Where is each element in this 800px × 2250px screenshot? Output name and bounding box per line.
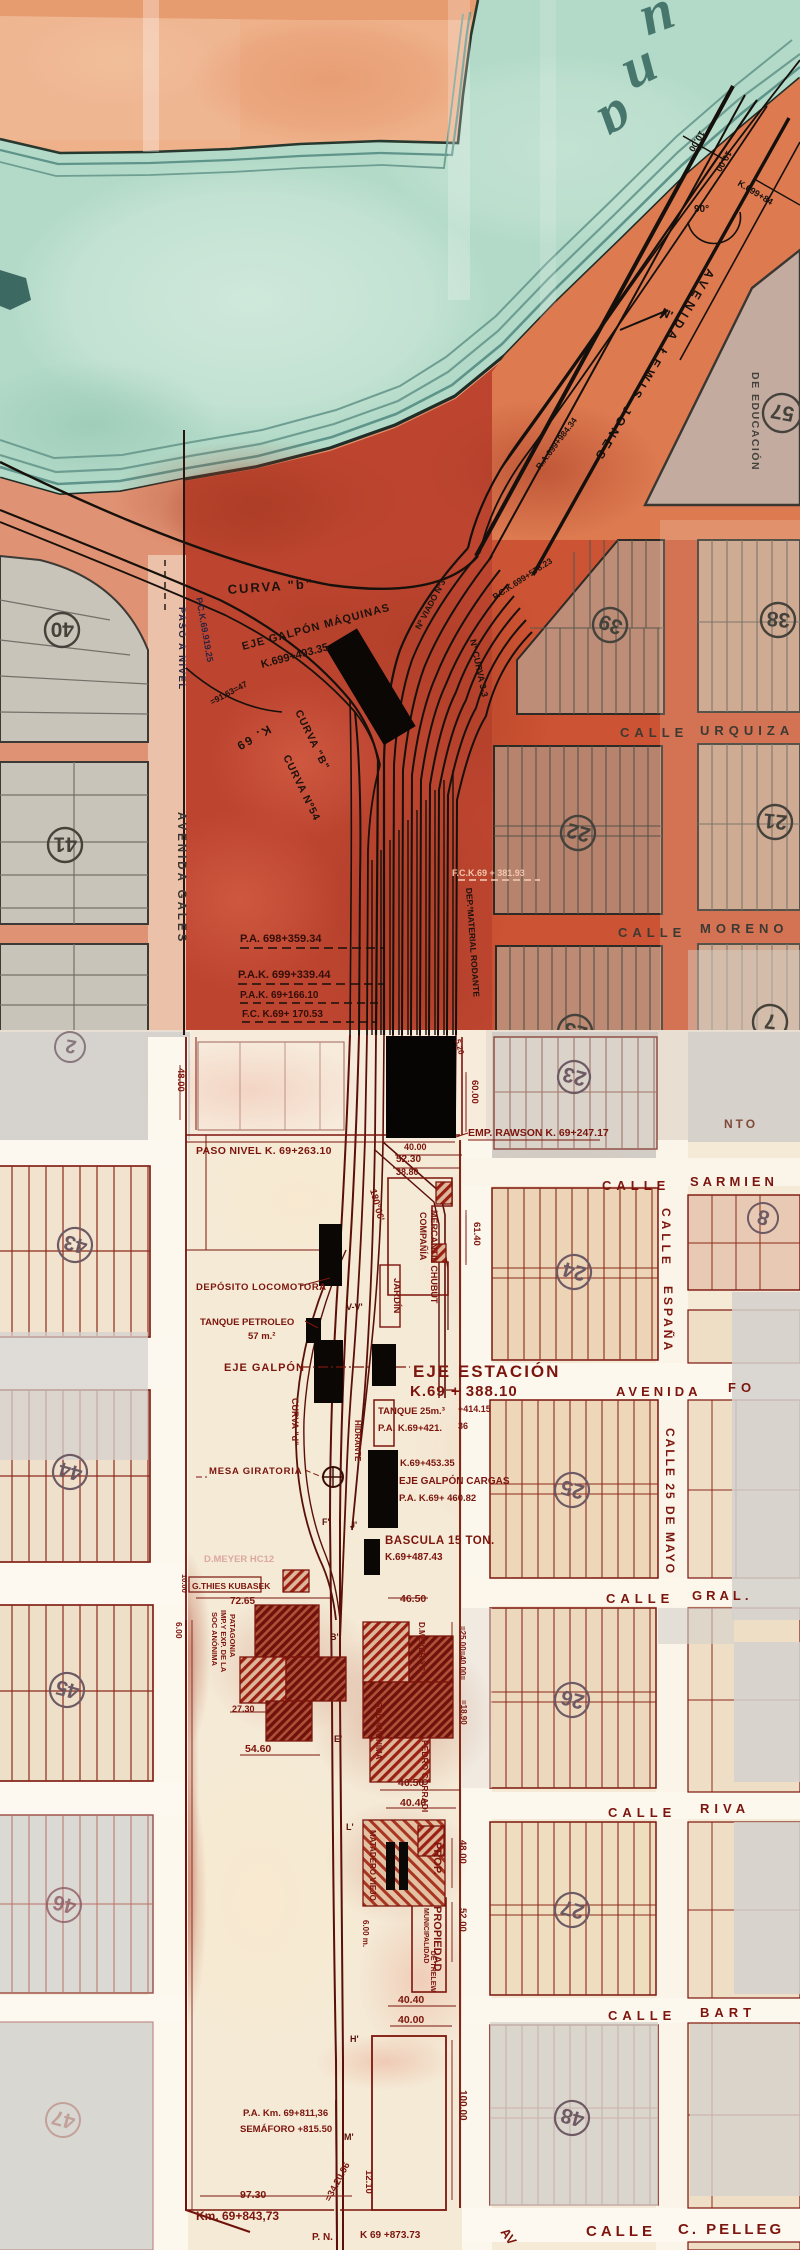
svg-text:P.A. K.69+421.: P.A. K.69+421. [378,1423,442,1434]
svg-text:DE TRELEW: DE TRELEW [429,1951,436,1993]
svg-text:10.00: 10.00 [180,1574,189,1593]
svg-text:46.50: 46.50 [400,1593,426,1605]
svg-text:V-V': V-V' [346,1302,363,1312]
svg-text:K.69+453.35: K.69+453.35 [400,1458,455,1469]
svg-text:K.69 + 388.10: K.69 + 388.10 [410,1383,518,1400]
svg-text:TANQUE PETROLEO: TANQUE PETROLEO [200,1317,294,1328]
svg-text:H': H' [350,2034,359,2044]
svg-text:F': F' [322,1517,330,1527]
svg-text:K.69+487.43: K.69+487.43 [385,1552,443,1563]
svg-text:DE EDUCACIÓN: DE EDUCACIÓN [749,372,762,471]
svg-text:52.00: 52.00 [457,1908,468,1932]
svg-text:E': E' [334,1734,342,1744]
svg-text:JARDÍN: JARDÍN [391,1278,402,1314]
svg-text:PATAGONIA: PATAGONIA [228,1614,237,1658]
svg-text:6.00: 6.00 [174,1622,184,1639]
svg-text:40.40: 40.40 [398,1994,424,2006]
svg-text:90°: 90° [694,204,709,215]
svg-text:36: 36 [458,1421,468,1431]
svg-text:PASO NIVEL K. 69+263.10: PASO NIVEL K. 69+263.10 [196,1145,332,1157]
svg-text:FO: FO [728,1380,756,1395]
svg-text:B': B' [330,1632,339,1642]
svg-text:57 m.²: 57 m.² [248,1331,275,1342]
svg-text:IMP.Y EXP. DE LA: IMP.Y EXP. DE LA [219,1610,228,1673]
svg-text:P.A. K.69+ 460.82: P.A. K.69+ 460.82 [399,1493,476,1504]
svg-text:+414.15: +414.15 [458,1404,491,1414]
svg-text:CALLE: CALLE [618,925,686,940]
svg-text:41: 41 [53,833,77,856]
svg-text:SOC ANÓNIMA: SOC ANÓNIMA [374,1702,383,1760]
svg-text:L': L' [346,1822,354,1832]
svg-text:EJE ESTACIÓN: EJE ESTACIÓN [413,1362,560,1381]
svg-text:GRAL.: GRAL. [692,1588,752,1603]
svg-text:CALLE 25 DE MAYO: CALLE 25 DE MAYO [663,1428,677,1575]
svg-text:TANQUE 25m.³: TANQUE 25m.³ [378,1406,445,1417]
svg-text:27.30: 27.30 [232,1704,255,1714]
svg-text:P.A. 698+359.34: P.A. 698+359.34 [240,933,322,945]
svg-text:SARMIEN: SARMIEN [690,1174,778,1189]
svg-text:D.MEYER YCª: D.MEYER YCª [417,1622,426,1675]
svg-text:EJE GALPÓN CARGAS: EJE GALPÓN CARGAS [399,1474,510,1487]
svg-text:40: 40 [51,618,74,641]
svg-text:100.00: 100.00 [457,2090,468,2121]
svg-text:CALLE: CALLE [606,1591,674,1606]
svg-text:EJE GALPÓN: EJE GALPÓN [224,1361,305,1374]
svg-text:J': J' [350,1520,357,1530]
svg-text:C. PELLEG: C. PELLEG [678,2221,784,2238]
svg-text:=18.90: =18.90 [459,1700,468,1725]
svg-text:12.10: 12.10 [363,2170,374,2194]
svg-text:P.A.K. 69+166.10: P.A.K. 69+166.10 [240,990,319,1001]
svg-text:PEDRO CORRADI: PEDRO CORRADI [420,1740,430,1812]
svg-text:CALLE: CALLE [620,725,688,740]
svg-text:40.00: 40.00 [398,2014,424,2026]
svg-text:60.00: 60.00 [469,1080,480,1104]
svg-text:6.00 m.: 6.00 m. [361,1920,370,1947]
svg-text:EMP. RAWSON K. 69+247.17: EMP. RAWSON K. 69+247.17 [468,1127,609,1139]
svg-text:BASCULA 15 TON.: BASCULA 15 TON. [385,1535,495,1547]
svg-text:NTO: NTO [724,1117,758,1131]
svg-text:COMPAÑÍA: COMPAÑÍA [418,1212,428,1261]
svg-text:48.00: 48.00 [457,1840,468,1864]
svg-text:P. N.: P. N. [312,2232,333,2243]
svg-text:57: 57 [769,399,796,426]
svg-text:PASO A NIVEL: PASO A NIVEL [176,607,187,691]
svg-text:MERCANTIL CHUBUT: MERCANTIL CHUBUT [429,1210,439,1304]
svg-text:61.40: 61.40 [471,1222,482,1246]
svg-text:40.00: 40.00 [404,1142,427,1152]
svg-text:ESPAÑA: ESPAÑA [661,1286,676,1353]
svg-text:7: 7 [763,1009,777,1033]
svg-text:CALLE: CALLE [608,2008,676,2023]
svg-text:HIDRANTE: HIDRANTE [353,1420,362,1462]
svg-text:P.A. Km. 69+811,36: P.A. Km. 69+811,36 [243,2108,328,2119]
svg-text:=25.00=40.00=: =25.00=40.00= [458,1626,467,1680]
svg-text:P.A.K. 699+339.44: P.A.K. 699+339.44 [238,969,331,981]
svg-text:CALLE: CALLE [602,1178,670,1193]
svg-text:MORENO: MORENO [700,921,789,936]
svg-text:38.80: 38.80 [396,1167,419,1177]
svg-text:RIVA: RIVA [700,1801,750,1816]
svg-text:97.30: 97.30 [240,2189,266,2201]
svg-text:F.C.K.69 + 381.93: F.C.K.69 + 381.93 [452,868,525,878]
svg-text:CALLE: CALLE [586,2223,656,2240]
svg-text:SEMÁFORO +815.50: SEMÁFORO +815.50 [240,2124,332,2135]
svg-text:54.60: 54.60 [245,1743,271,1755]
svg-text:DEPÓSITO LOCOMOTORA: DEPÓSITO LOCOMOTORA [196,1281,327,1293]
svg-text:K 69 +873.73: K 69 +873.73 [360,2230,421,2241]
svg-text:BART: BART [700,2005,756,2020]
svg-text:CURVA "d": CURVA "d" [290,1398,300,1445]
svg-text:SOC ANÓNIMA: SOC ANÓNIMA [210,1612,219,1666]
svg-text:72.65: 72.65 [230,1596,255,1607]
svg-text:MESA GIRATORIA: MESA GIRATORIA [209,1466,302,1477]
svg-text:Km. 69+843,73: Km. 69+843,73 [196,2209,279,2223]
svg-text:URQUIZA: URQUIZA [700,723,794,738]
svg-text:AVENIDA: AVENIDA [616,1384,702,1399]
svg-text:G.THIES KUBASEK: G.THIES KUBASEK [192,1581,271,1591]
svg-text:PROP.: PROP. [431,1842,443,1875]
svg-text:MATADERO VIEJO: MATADERO VIEJO [368,1830,377,1901]
svg-text:F.C. K.69+ 170.53: F.C. K.69+ 170.53 [242,1009,323,1020]
svg-text:CALLE: CALLE [608,1805,676,1820]
svg-text:M': M' [344,2132,354,2142]
svg-text:CALLE: CALLE [659,1208,673,1268]
svg-text:48.00: 48.00 [175,1068,186,1092]
svg-text:D.MEYER HC12: D.MEYER HC12 [204,1554,274,1565]
svg-text:21: 21 [762,809,788,834]
svg-text:MUNICIPALIDAD: MUNICIPALIDAD [422,1908,429,1963]
svg-text:AVENIDA GALES: AVENIDA GALES [175,812,187,944]
svg-text:38: 38 [765,607,791,632]
svg-text:52.30: 52.30 [396,1154,421,1165]
